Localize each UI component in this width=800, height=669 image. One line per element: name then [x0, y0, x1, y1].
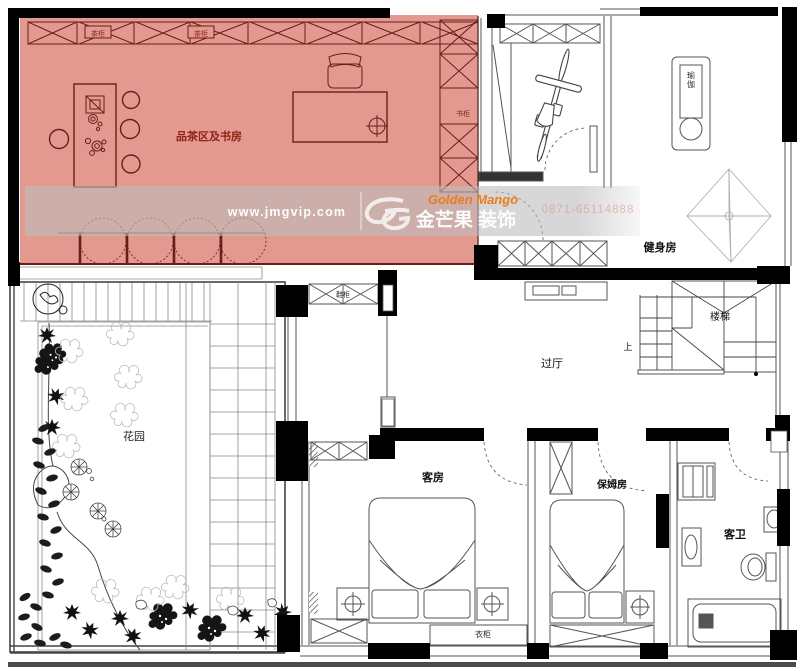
svg-text:客房: 客房 — [421, 470, 444, 484]
svg-text:www.jmgvip.com: www.jmgvip.com — [227, 205, 346, 219]
svg-text:瑜: 瑜 — [687, 70, 695, 80]
svg-text:鞋柜: 鞋柜 — [336, 290, 350, 299]
svg-text:上: 上 — [623, 342, 632, 352]
svg-text:健身房: 健身房 — [644, 240, 677, 254]
svg-text:金芒果 装饰: 金芒果 装饰 — [415, 208, 516, 231]
svg-text:花园: 花园 — [123, 430, 145, 443]
svg-text:伽: 伽 — [687, 79, 695, 89]
svg-text:客卫: 客卫 — [723, 527, 746, 541]
svg-text:Golden Mango: Golden Mango — [428, 192, 518, 207]
svg-text:过厅: 过厅 — [541, 357, 563, 370]
svg-text:0871-65114888: 0871-65114888 — [542, 204, 635, 216]
svg-text:衣柜: 衣柜 — [475, 629, 491, 639]
svg-text:楼梯: 楼梯 — [710, 310, 730, 323]
svg-text:保姆房: 保姆房 — [596, 478, 627, 491]
